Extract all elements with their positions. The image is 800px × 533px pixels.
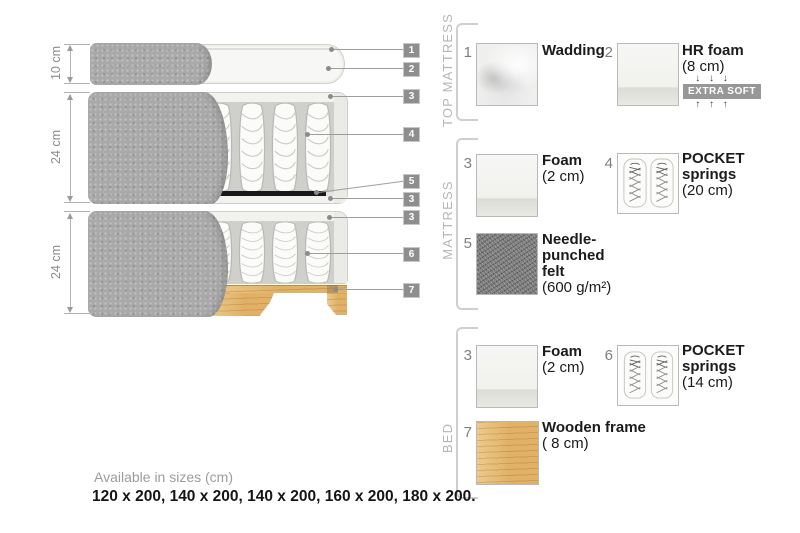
legend-item-name: POCKET (682, 151, 745, 167)
layer-tag-7: 7 (403, 283, 420, 298)
legend-item-label: Needle- punched felt (600 g/m²) (542, 232, 611, 296)
legend-item-label: Foam (2 cm) (542, 153, 585, 185)
layer-tag-3c: 3 (403, 210, 420, 225)
legend-item-name: punched (542, 248, 611, 264)
dim-label-top-mattress: 10 cm (49, 33, 63, 93)
foam-swatch (476, 345, 538, 408)
legend-item-label: POCKET springs (20 cm) (682, 151, 745, 199)
dim-line (70, 214, 71, 310)
callout-dot (333, 287, 338, 292)
pocket-springs-20-swatch (617, 153, 679, 214)
legend-item-number: 3 (458, 155, 472, 172)
layer-tag-2: 2 (403, 62, 420, 77)
layer-tag-4: 4 (403, 127, 420, 142)
mattress-side-cover (334, 93, 347, 203)
callout-dot (329, 47, 334, 52)
callout-dot (305, 132, 310, 137)
dim-tick (64, 313, 90, 314)
leader-line (332, 96, 403, 97)
legend-item-size: (600 g/m²) (542, 280, 611, 296)
top-mattress-fabric (90, 43, 212, 85)
arrow-up-icon (67, 213, 73, 219)
callout-dot (328, 196, 333, 201)
legend-item-name: felt (542, 264, 611, 280)
arrow-up-icon (67, 94, 73, 100)
group-bracket (456, 23, 478, 121)
layer-tag-3b: 3 (403, 192, 420, 207)
legend-item-label: HR foam (8 cm) (682, 43, 744, 75)
available-sizes-caption: Available in sizes (cm) (94, 469, 233, 485)
legend-item-number: 6 (599, 347, 613, 364)
foam-swatch (476, 154, 538, 217)
arrow-up-icon (67, 45, 73, 51)
group-title-top-mattress: TOP MATTRESS (439, 0, 455, 140)
legend-item-name: springs (682, 359, 745, 375)
legend-item-size: (20 cm) (682, 183, 745, 199)
layer-tag-5: 5 (403, 174, 420, 189)
legend-item-size: (14 cm) (682, 375, 745, 391)
callout-dot (327, 215, 332, 220)
leader-line (332, 198, 403, 199)
pocket-springs-14-swatch (617, 345, 679, 406)
legend-item-label: Wooden frame ( 8 cm) (542, 420, 646, 452)
legend-item-number: 3 (458, 347, 472, 364)
layer-tag-3: 3 (403, 89, 420, 104)
legend-item-name: Wooden frame (542, 420, 646, 436)
legend-item-label: Wadding (542, 43, 605, 59)
needle-punched-felt-swatch (476, 233, 538, 295)
legend-item-number: 1 (458, 44, 472, 61)
callout-dot (328, 94, 333, 99)
hr-foam-swatch (617, 43, 679, 106)
legend-item-size: ( 8 cm) (542, 436, 646, 452)
soft-arrows-down-icon: ↓ ↓ ↓ (682, 73, 744, 84)
mattress-construction-infographic: 10 cm 24 cm 24 cm (0, 0, 800, 533)
wooden-frame-swatch (476, 421, 539, 485)
legend-item-number: 5 (458, 235, 472, 252)
extra-soft-badge: EXTRA SOFT (683, 84, 761, 99)
group-title-bed: BED (439, 368, 455, 508)
dim-tick (64, 92, 90, 93)
legend-item-name: HR foam (682, 43, 744, 59)
callout-dot (305, 251, 310, 256)
mattress-fabric (88, 92, 228, 204)
legend-item-name: Needle- (542, 232, 611, 248)
legend-item-size: (2 cm) (542, 169, 585, 185)
legend-item-size: (2 cm) (542, 360, 585, 376)
dim-line (70, 95, 71, 200)
legend-item-number: 7 (458, 424, 472, 441)
wadding-swatch (476, 43, 538, 106)
leader-line (331, 217, 403, 218)
layer-tag-1: 1 (403, 43, 420, 58)
soft-arrows-up-icon: ↑ ↑ ↑ (682, 99, 744, 110)
dim-tick (64, 202, 90, 203)
leader-line (330, 68, 403, 69)
dim-label-mattress: 24 cm (49, 117, 63, 177)
legend-item-number: 4 (599, 155, 613, 172)
arrow-down-icon (67, 196, 73, 202)
leader-line (337, 289, 403, 290)
leader-line (333, 49, 403, 50)
callout-dot (314, 190, 319, 195)
dim-tick (64, 211, 90, 212)
legend-item-name: Wadding (542, 43, 605, 59)
leader-line (309, 253, 403, 254)
legend-item-name: Foam (542, 344, 585, 360)
legend-item-number: 2 (599, 44, 613, 61)
bed-wood-leg (327, 293, 347, 315)
legend-item-label: POCKET springs (14 cm) (682, 343, 745, 391)
bed-fabric (88, 211, 228, 317)
group-title-mattress: MATTRESS (439, 150, 455, 290)
legend-item-name: POCKET (682, 343, 745, 359)
legend-item-name: Foam (542, 153, 585, 169)
legend-item-name: springs (682, 167, 745, 183)
dim-tick (64, 83, 90, 84)
callout-dot (326, 66, 331, 71)
arrow-down-icon (67, 307, 73, 313)
legend-item-label: Foam (2 cm) (542, 344, 585, 376)
leader-line (309, 134, 403, 135)
available-sizes-list: 120 x 200, 140 x 200, 140 x 200, 160 x 2… (92, 488, 476, 506)
dim-label-bed: 24 cm (49, 232, 63, 292)
arrow-down-icon (67, 77, 73, 83)
layer-tag-6: 6 (403, 247, 420, 262)
bed-side-cover (334, 212, 347, 283)
